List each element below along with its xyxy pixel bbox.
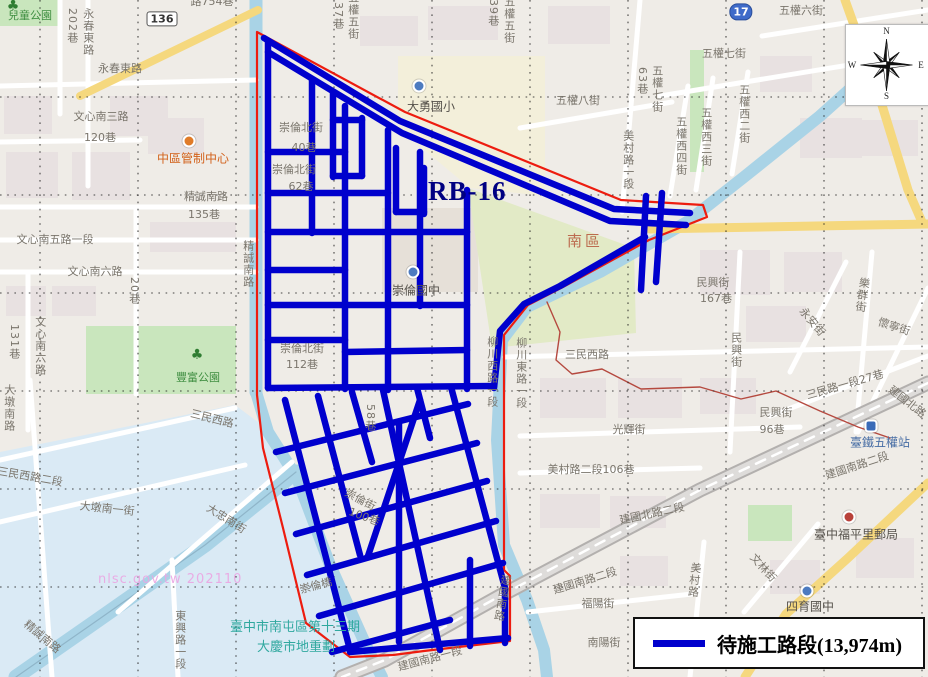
map-label: 民興街 (760, 407, 793, 419)
route-shield-icon: 136 (147, 11, 178, 26)
map-label: 光輝街 (613, 424, 646, 436)
map-label: 大慶市地重劃 (257, 641, 335, 655)
map-label: 五權五街 (347, 0, 359, 40)
map-label: 崇倫北街 (272, 164, 316, 176)
map-label: 文心南六路 (34, 316, 46, 376)
map-label: 63巷 (636, 67, 648, 95)
map-label: 精誠南路 (242, 240, 254, 288)
legend-line-swatch (653, 640, 705, 647)
map-label: 文心南五路一段 (17, 234, 94, 246)
map-label: 永春東路 (98, 63, 142, 75)
map-label: 文心南三路 (74, 111, 129, 123)
map-label: 58巷 (364, 404, 376, 432)
map-label: 62巷 (289, 181, 314, 193)
map-label: 五權七街 (651, 65, 663, 113)
map-label: 福陽街 (582, 598, 615, 610)
map-label: 精誠南路 (184, 191, 228, 203)
tree-icon: ♣ (191, 348, 204, 362)
map-label: 120巷 (84, 132, 116, 144)
map-label: 臺中福平里郵局 (814, 529, 898, 542)
map-label: 臺鐵五權站 (850, 437, 910, 450)
map-label: 豐富公園 (176, 372, 220, 384)
map-label: 202巷 (66, 8, 78, 44)
map-label: 南區 (567, 234, 603, 250)
map-label: 四育國中 (786, 601, 834, 614)
map-label: 柳川西路一段 (486, 336, 498, 408)
map-label: 96巷 (760, 424, 785, 436)
map-label: 五權西四街 (675, 116, 687, 176)
svg-text:S: S (884, 91, 889, 101)
map-label: 135巷 (188, 209, 220, 221)
control-icon (183, 135, 196, 148)
map-label: 美村路 (686, 561, 701, 598)
map-label: 39巷 (487, 0, 499, 27)
map-label: 文心南六路 (68, 266, 123, 278)
map-label: 40巷 (292, 142, 317, 154)
map-label: 131巷 (8, 324, 20, 360)
map-label: 五權西二街 (738, 84, 750, 144)
map-label: 永春東路 (82, 8, 94, 56)
legend: 待施工路段(13,974m) (633, 617, 925, 669)
map-label: 大勇國小 (407, 101, 455, 114)
svg-text:W: W (848, 60, 857, 70)
tree-icon: ♣ (7, 0, 20, 13)
map-label: 五權七街 (702, 48, 746, 60)
map-label: 東興路一段 (174, 610, 186, 670)
school-icon (801, 585, 814, 598)
map-label: 大墩南路 (3, 384, 15, 432)
school-icon (407, 266, 420, 279)
map-label: 中區管制中心 (157, 153, 229, 166)
map-label: 20巷 (128, 277, 140, 305)
map-label: 112巷 (286, 359, 318, 371)
map-label: 崇倫北街 (279, 122, 323, 134)
map-label: 37巷 (332, 2, 344, 30)
map-label: 路754巷 (191, 0, 234, 8)
map-label: 美村路一段 (622, 130, 634, 190)
map-label: 三民西路 (565, 349, 609, 361)
map-label: 民興街 (730, 332, 742, 368)
map-label: 167巷 (700, 293, 732, 305)
map-label: 民興街 (697, 277, 730, 289)
map-label: 五權五街 (503, 0, 515, 44)
map-label: 柳川東路一段 (515, 337, 527, 409)
map-canvas: 兒童公園202巷永春東路路754巷永春東路文心南三路120巷中區管制中心精誠南路… (0, 0, 928, 677)
map-label: 崇倫國中 (392, 285, 440, 298)
station-icon (865, 420, 878, 433)
watermark: nlsc.gov.tw 202110 (98, 572, 242, 587)
map-label: 南陽街 (588, 637, 621, 649)
map-label: 臺中市南屯區第十三期 (230, 621, 360, 635)
compass-rose: NESW (845, 24, 928, 106)
map-label: 美村路二段106巷 (548, 464, 635, 476)
school-icon (413, 80, 426, 93)
post-icon (843, 511, 856, 524)
map-label: 五權八街 (556, 95, 600, 107)
svg-text:N: N (883, 26, 890, 36)
map-label: 五權西三街 (700, 107, 712, 167)
map-label: 崇倫北街 (280, 343, 324, 355)
project-area-code: RB-16 (428, 176, 507, 207)
svg-text:E: E (918, 60, 924, 70)
map-label: 五權六街 (779, 5, 823, 17)
route-shield-icon: 17 (729, 3, 752, 20)
legend-label: 待施工路段(13,974m) (717, 629, 902, 658)
